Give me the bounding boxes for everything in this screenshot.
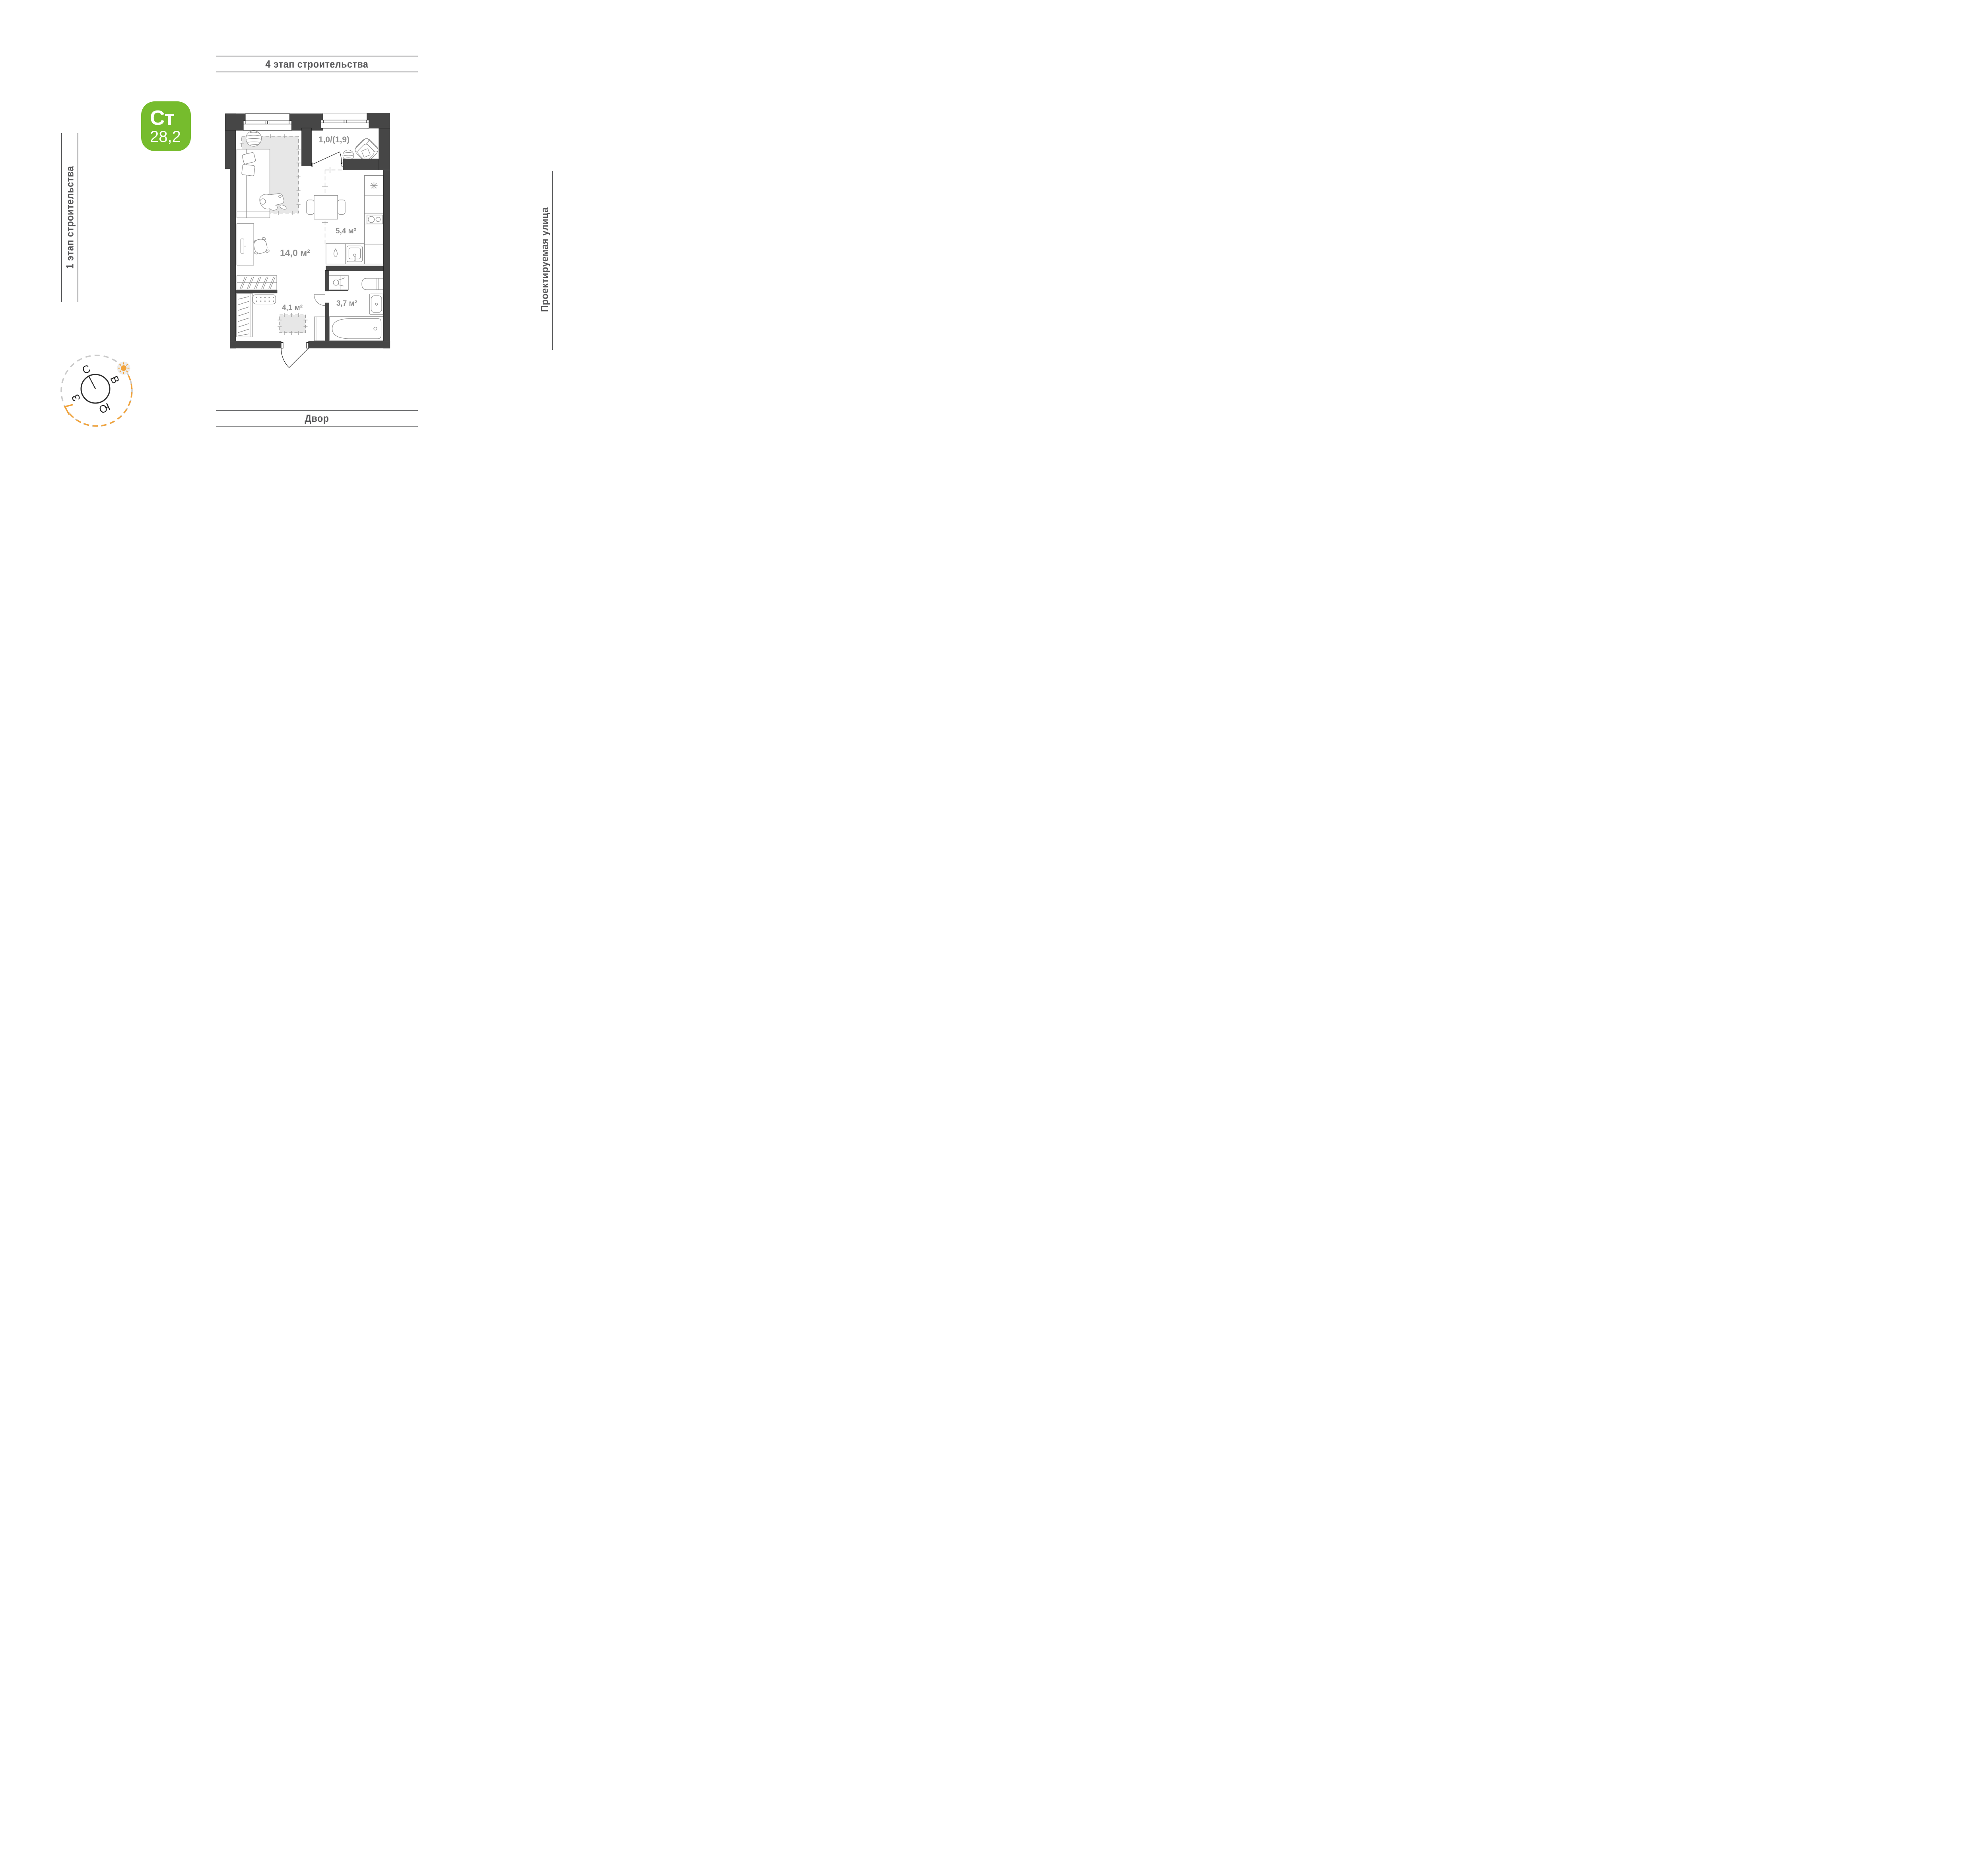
sun-path-arrow-icon xyxy=(65,405,73,415)
office-chair xyxy=(251,237,270,256)
wardrobe xyxy=(237,293,252,337)
cooktop xyxy=(367,215,383,224)
living-area-label: 14,0 м² xyxy=(280,248,310,258)
dining-table xyxy=(307,195,345,219)
compass-west-label: З xyxy=(69,392,83,403)
washing-machine xyxy=(329,275,348,290)
floor-plan-page: 4 этап строительства Двор 1 этап строите… xyxy=(0,0,614,482)
seated-person-figure xyxy=(260,194,287,210)
bathroom-area-label: 3,7 м² xyxy=(336,299,357,308)
window-living xyxy=(243,114,292,130)
sun-icon xyxy=(117,362,130,375)
kitchen-sink xyxy=(347,246,363,262)
kitchen-area-label: 5,4 м² xyxy=(336,227,356,235)
desk xyxy=(237,223,254,265)
entry-door xyxy=(281,343,309,368)
hallway-area-label: 4,1 м² xyxy=(282,304,303,312)
fridge-icon xyxy=(371,182,378,189)
compass-north-label: С xyxy=(80,363,92,376)
plant-living xyxy=(246,131,262,146)
balcony-door xyxy=(311,152,343,166)
balcony-area-label: 1,0/(1,9) xyxy=(318,135,349,144)
washbasin xyxy=(369,294,383,314)
window-balcony xyxy=(321,113,369,128)
shoe-bench xyxy=(253,295,276,304)
bathroom-door xyxy=(314,295,325,306)
floor-plan-drawing: 14,0 м² 5,4 м² 4,1 м² 3,7 м² 1,0/(1,9) С… xyxy=(0,0,614,482)
toilet xyxy=(362,278,383,290)
entry-mat xyxy=(278,313,307,335)
hallway-cabinet xyxy=(315,317,325,341)
compass: С В Ю З xyxy=(61,355,132,426)
compass-east-label: В xyxy=(108,374,122,386)
bathtub xyxy=(330,316,384,341)
coat-rack xyxy=(237,275,277,290)
